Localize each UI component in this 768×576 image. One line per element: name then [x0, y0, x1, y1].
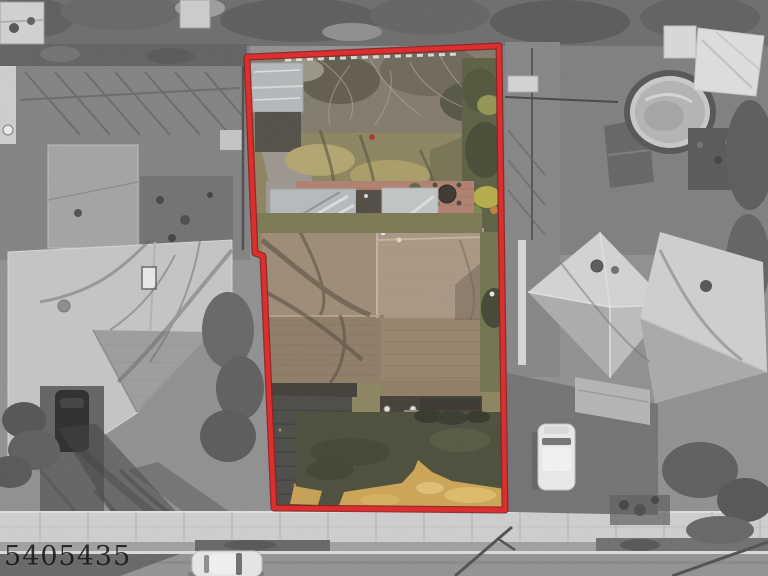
- photo-grain: [0, 0, 768, 576]
- aerial-photo-canvas: [0, 0, 768, 576]
- mls-watermark: 5405435: [4, 543, 131, 570]
- aerial-photo: 5405435: [0, 0, 768, 576]
